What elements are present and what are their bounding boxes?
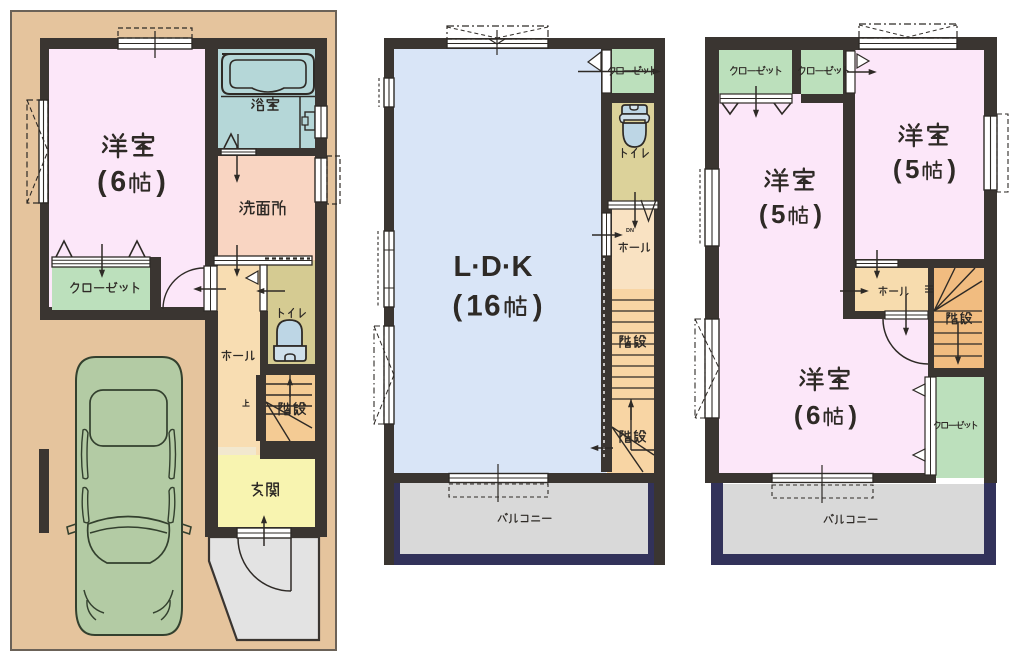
svg-text:): ) <box>533 289 543 322</box>
svg-text:6: 6 <box>110 166 127 198</box>
svg-text:(: ( <box>452 289 462 322</box>
svg-text:5: 5 <box>905 154 921 184</box>
svg-text:): ) <box>156 166 165 198</box>
svg-text:(: ( <box>794 400 803 430</box>
svg-text:16: 16 <box>466 289 502 322</box>
svg-text:6: 6 <box>806 400 822 430</box>
svg-text:L·D·K: L·D·K <box>454 251 533 283</box>
svg-text:(: ( <box>759 199 768 229</box>
svg-text:(: ( <box>893 154 902 184</box>
svg-text:): ) <box>947 154 956 184</box>
svg-text:): ) <box>813 199 822 229</box>
svg-text:DN: DN <box>626 228 634 234</box>
svg-text:): ) <box>848 400 857 430</box>
svg-text:(: ( <box>97 166 107 198</box>
svg-text:5: 5 <box>771 199 787 229</box>
